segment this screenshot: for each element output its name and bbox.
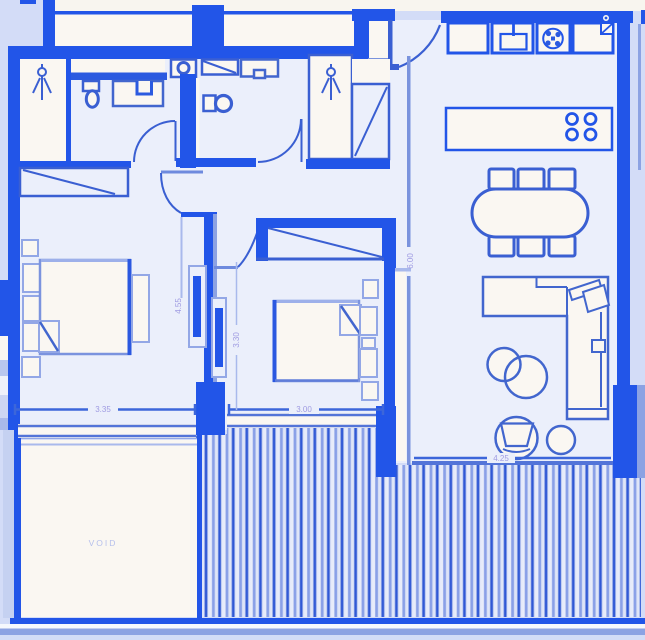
svg-text:6.00: 6.00 xyxy=(406,253,415,269)
svg-text:VOID: VOID xyxy=(89,538,118,548)
svg-text:3.00: 3.00 xyxy=(296,405,312,414)
svg-text:4.55: 4.55 xyxy=(174,298,183,314)
svg-text:3.35: 3.35 xyxy=(95,405,111,414)
svg-text:3.30: 3.30 xyxy=(232,332,241,348)
svg-text:4.25: 4.25 xyxy=(493,454,509,463)
